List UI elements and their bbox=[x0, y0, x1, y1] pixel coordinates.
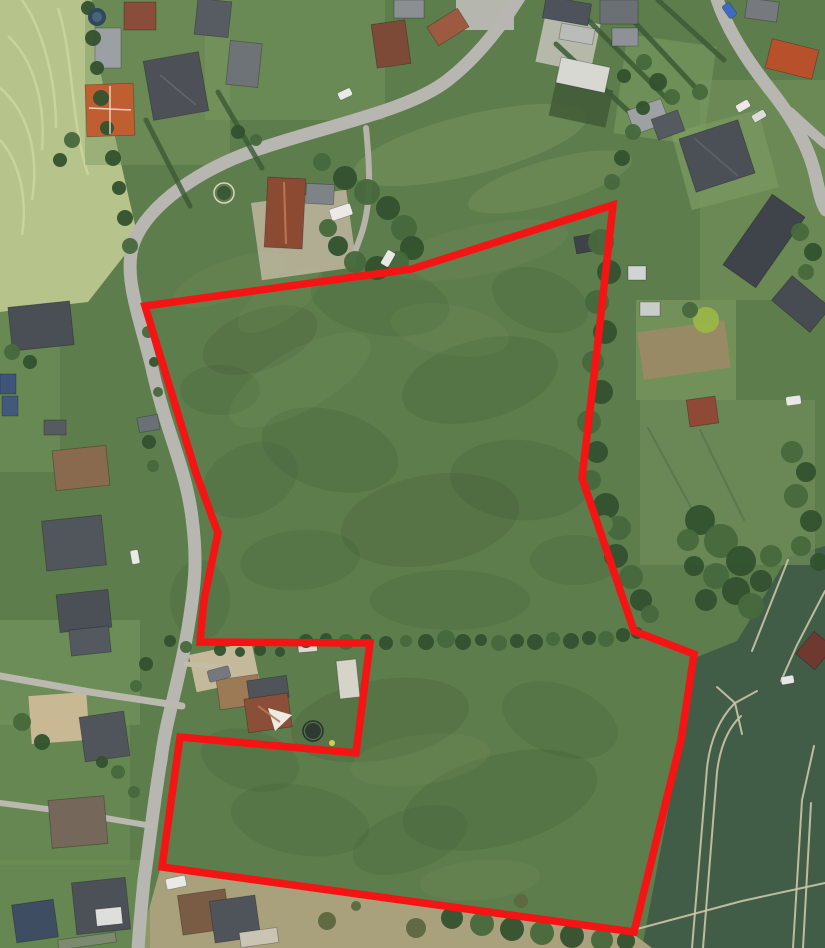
tree bbox=[376, 196, 400, 220]
tree bbox=[4, 344, 20, 360]
tree bbox=[800, 510, 822, 532]
tree bbox=[379, 636, 393, 650]
tree bbox=[235, 647, 245, 657]
building bbox=[2, 396, 18, 416]
tree bbox=[791, 223, 809, 241]
tree bbox=[275, 647, 285, 657]
tree bbox=[546, 632, 560, 646]
building bbox=[44, 420, 66, 435]
tree bbox=[128, 786, 140, 798]
tree bbox=[93, 90, 109, 106]
tree bbox=[682, 302, 698, 318]
vehicle bbox=[785, 395, 801, 406]
tree bbox=[617, 69, 631, 83]
ground-detail bbox=[217, 186, 231, 200]
building bbox=[95, 907, 123, 927]
tree bbox=[804, 243, 822, 261]
building bbox=[194, 0, 232, 38]
tree bbox=[510, 634, 524, 648]
building bbox=[686, 396, 718, 427]
tree bbox=[418, 634, 434, 650]
tree bbox=[53, 153, 67, 167]
tree bbox=[111, 765, 125, 779]
tree bbox=[664, 89, 680, 105]
tree bbox=[625, 124, 641, 140]
tree bbox=[527, 634, 543, 650]
tree bbox=[475, 634, 487, 646]
tree bbox=[153, 387, 163, 397]
tree bbox=[333, 166, 357, 190]
tree bbox=[354, 179, 380, 205]
meadow-texture bbox=[370, 570, 530, 630]
ground-detail bbox=[92, 12, 102, 22]
tree bbox=[180, 641, 192, 653]
tree bbox=[750, 570, 772, 592]
tree bbox=[692, 84, 708, 100]
tree bbox=[636, 54, 652, 70]
tree bbox=[34, 734, 50, 750]
building bbox=[69, 626, 111, 656]
tree bbox=[677, 529, 699, 551]
tree bbox=[351, 901, 361, 911]
building bbox=[336, 659, 360, 699]
tree bbox=[100, 121, 114, 135]
tree bbox=[616, 628, 630, 642]
tree bbox=[437, 630, 455, 648]
building bbox=[226, 40, 262, 87]
building bbox=[124, 2, 156, 30]
tree bbox=[122, 238, 138, 254]
tree bbox=[791, 536, 811, 556]
building bbox=[143, 52, 209, 121]
tree bbox=[614, 150, 630, 166]
tree bbox=[344, 251, 366, 273]
tree bbox=[726, 546, 756, 576]
tree bbox=[328, 236, 348, 256]
tree bbox=[455, 634, 471, 650]
tree bbox=[400, 635, 412, 647]
building bbox=[628, 266, 646, 280]
tree bbox=[619, 565, 643, 589]
tree bbox=[500, 917, 524, 941]
tree bbox=[130, 680, 142, 692]
building bbox=[42, 515, 107, 571]
building bbox=[394, 0, 424, 18]
tree bbox=[85, 30, 101, 46]
aerial-photo-map bbox=[0, 0, 825, 948]
tree bbox=[738, 593, 764, 619]
tree bbox=[796, 462, 816, 482]
tree bbox=[784, 484, 808, 508]
tree bbox=[96, 756, 108, 768]
tree bbox=[250, 134, 262, 146]
building bbox=[0, 374, 16, 394]
tree bbox=[23, 355, 37, 369]
map-viewport bbox=[0, 0, 825, 948]
building bbox=[600, 0, 638, 24]
building bbox=[12, 899, 59, 942]
tree bbox=[563, 633, 579, 649]
tree bbox=[319, 219, 337, 237]
tree bbox=[139, 657, 153, 671]
building bbox=[79, 711, 130, 762]
tree bbox=[684, 556, 704, 576]
tree bbox=[604, 174, 620, 190]
ground-detail bbox=[329, 740, 335, 746]
tree bbox=[636, 101, 650, 115]
tree bbox=[781, 441, 803, 463]
tree bbox=[649, 73, 667, 91]
building bbox=[612, 28, 638, 46]
tree bbox=[231, 125, 245, 139]
tree bbox=[695, 589, 717, 611]
tree bbox=[530, 921, 554, 945]
building bbox=[137, 414, 160, 432]
tree bbox=[760, 545, 782, 567]
tree bbox=[64, 132, 80, 148]
tree bbox=[142, 435, 156, 449]
tree bbox=[598, 631, 614, 647]
ground-detail bbox=[305, 723, 321, 739]
building bbox=[640, 302, 660, 316]
tree bbox=[798, 264, 814, 280]
building bbox=[305, 183, 334, 204]
building bbox=[52, 445, 110, 490]
tree bbox=[164, 635, 176, 647]
tree bbox=[117, 210, 133, 226]
tree bbox=[491, 635, 507, 651]
tree bbox=[105, 150, 121, 166]
tree bbox=[406, 918, 426, 938]
tree bbox=[13, 713, 31, 731]
tree bbox=[318, 912, 336, 930]
building bbox=[48, 796, 108, 849]
tree bbox=[313, 153, 331, 171]
building bbox=[371, 20, 411, 68]
tree bbox=[641, 605, 659, 623]
tree bbox=[112, 181, 126, 195]
tree bbox=[147, 460, 159, 472]
building bbox=[8, 301, 74, 351]
tree bbox=[90, 61, 104, 75]
tree bbox=[514, 894, 528, 908]
tree bbox=[582, 631, 596, 645]
